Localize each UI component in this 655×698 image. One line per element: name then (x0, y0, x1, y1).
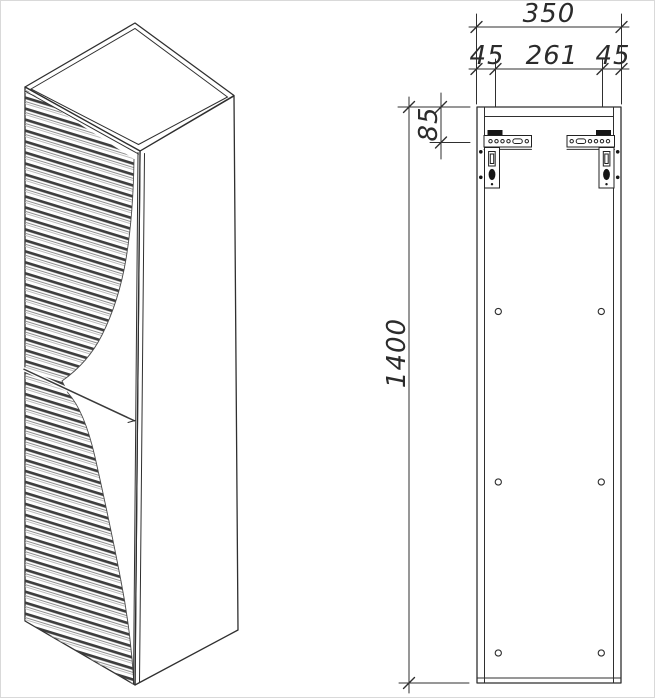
fixing-hole (495, 479, 501, 485)
isometric-view (21, 23, 238, 693)
dimension-height: 1400 (382, 97, 470, 693)
cabinet-side-panel (135, 96, 238, 685)
rear-panel (477, 107, 621, 683)
fixing-hole (598, 308, 604, 314)
dim-top-offset-label: 85 (414, 106, 444, 141)
technical-drawing: 1400 85 350 45 2 (1, 1, 655, 698)
rear-elevation-view: 1400 85 350 45 2 (382, 1, 631, 693)
dim-left-offset-label: 45 (469, 41, 504, 71)
drawing-sheet: 1400 85 350 45 2 (0, 0, 655, 698)
fixing-hole (598, 479, 604, 485)
dim-height-label: 1400 (382, 318, 412, 388)
dimension-top-offset: 85 (414, 93, 470, 159)
dim-center-span-label: 261 (526, 41, 579, 71)
dim-total-width-label: 350 (523, 1, 576, 29)
fixing-hole (495, 308, 501, 314)
fixing-hole (495, 650, 501, 656)
fixing-hole (598, 650, 604, 656)
rear-panel-outline (477, 107, 621, 683)
dim-right-offset-label: 45 (595, 41, 630, 71)
